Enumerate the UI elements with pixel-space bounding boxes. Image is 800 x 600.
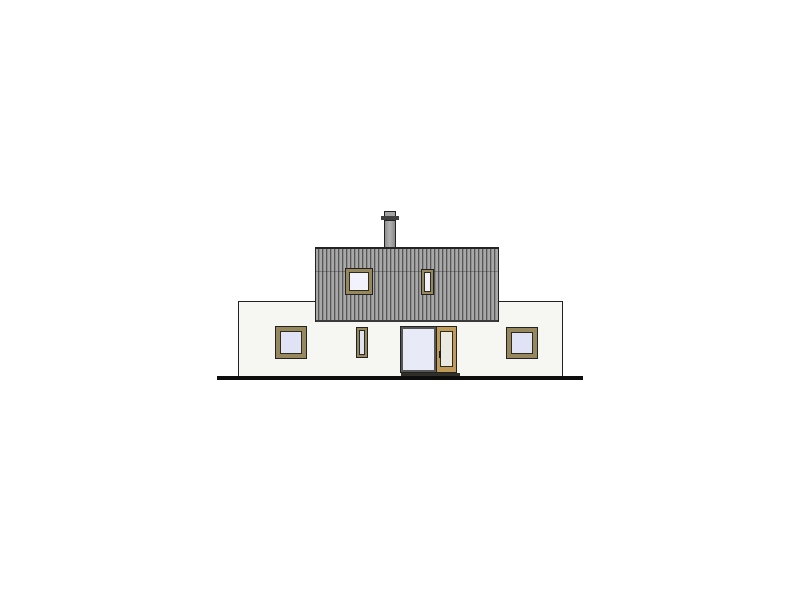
chimney-stack bbox=[384, 220, 396, 248]
elevation-canvas bbox=[0, 0, 800, 600]
entry-door-leaf bbox=[436, 326, 457, 373]
cladding-bottom-edge bbox=[316, 320, 498, 322]
window-lower-right bbox=[506, 327, 538, 359]
sidelight-glass bbox=[403, 329, 434, 370]
window-glass bbox=[511, 332, 533, 354]
upper-floor-cladding bbox=[315, 247, 499, 322]
ground-line bbox=[217, 376, 583, 380]
window-glass bbox=[424, 272, 431, 292]
door-handle-icon bbox=[439, 351, 441, 358]
cladding-seam-line bbox=[316, 271, 498, 272]
window-glass bbox=[349, 272, 369, 291]
door-sidelight-panel bbox=[400, 326, 437, 373]
roof-edge-line bbox=[316, 247, 498, 249]
window-lower-middle bbox=[356, 327, 368, 358]
window-glass bbox=[359, 330, 365, 355]
window-glass bbox=[280, 331, 302, 354]
window-lower-left bbox=[275, 326, 307, 359]
window-upper-square bbox=[345, 268, 373, 295]
entry-door-assembly bbox=[400, 326, 457, 373]
door-panel bbox=[440, 331, 453, 367]
window-upper-narrow bbox=[421, 269, 434, 295]
